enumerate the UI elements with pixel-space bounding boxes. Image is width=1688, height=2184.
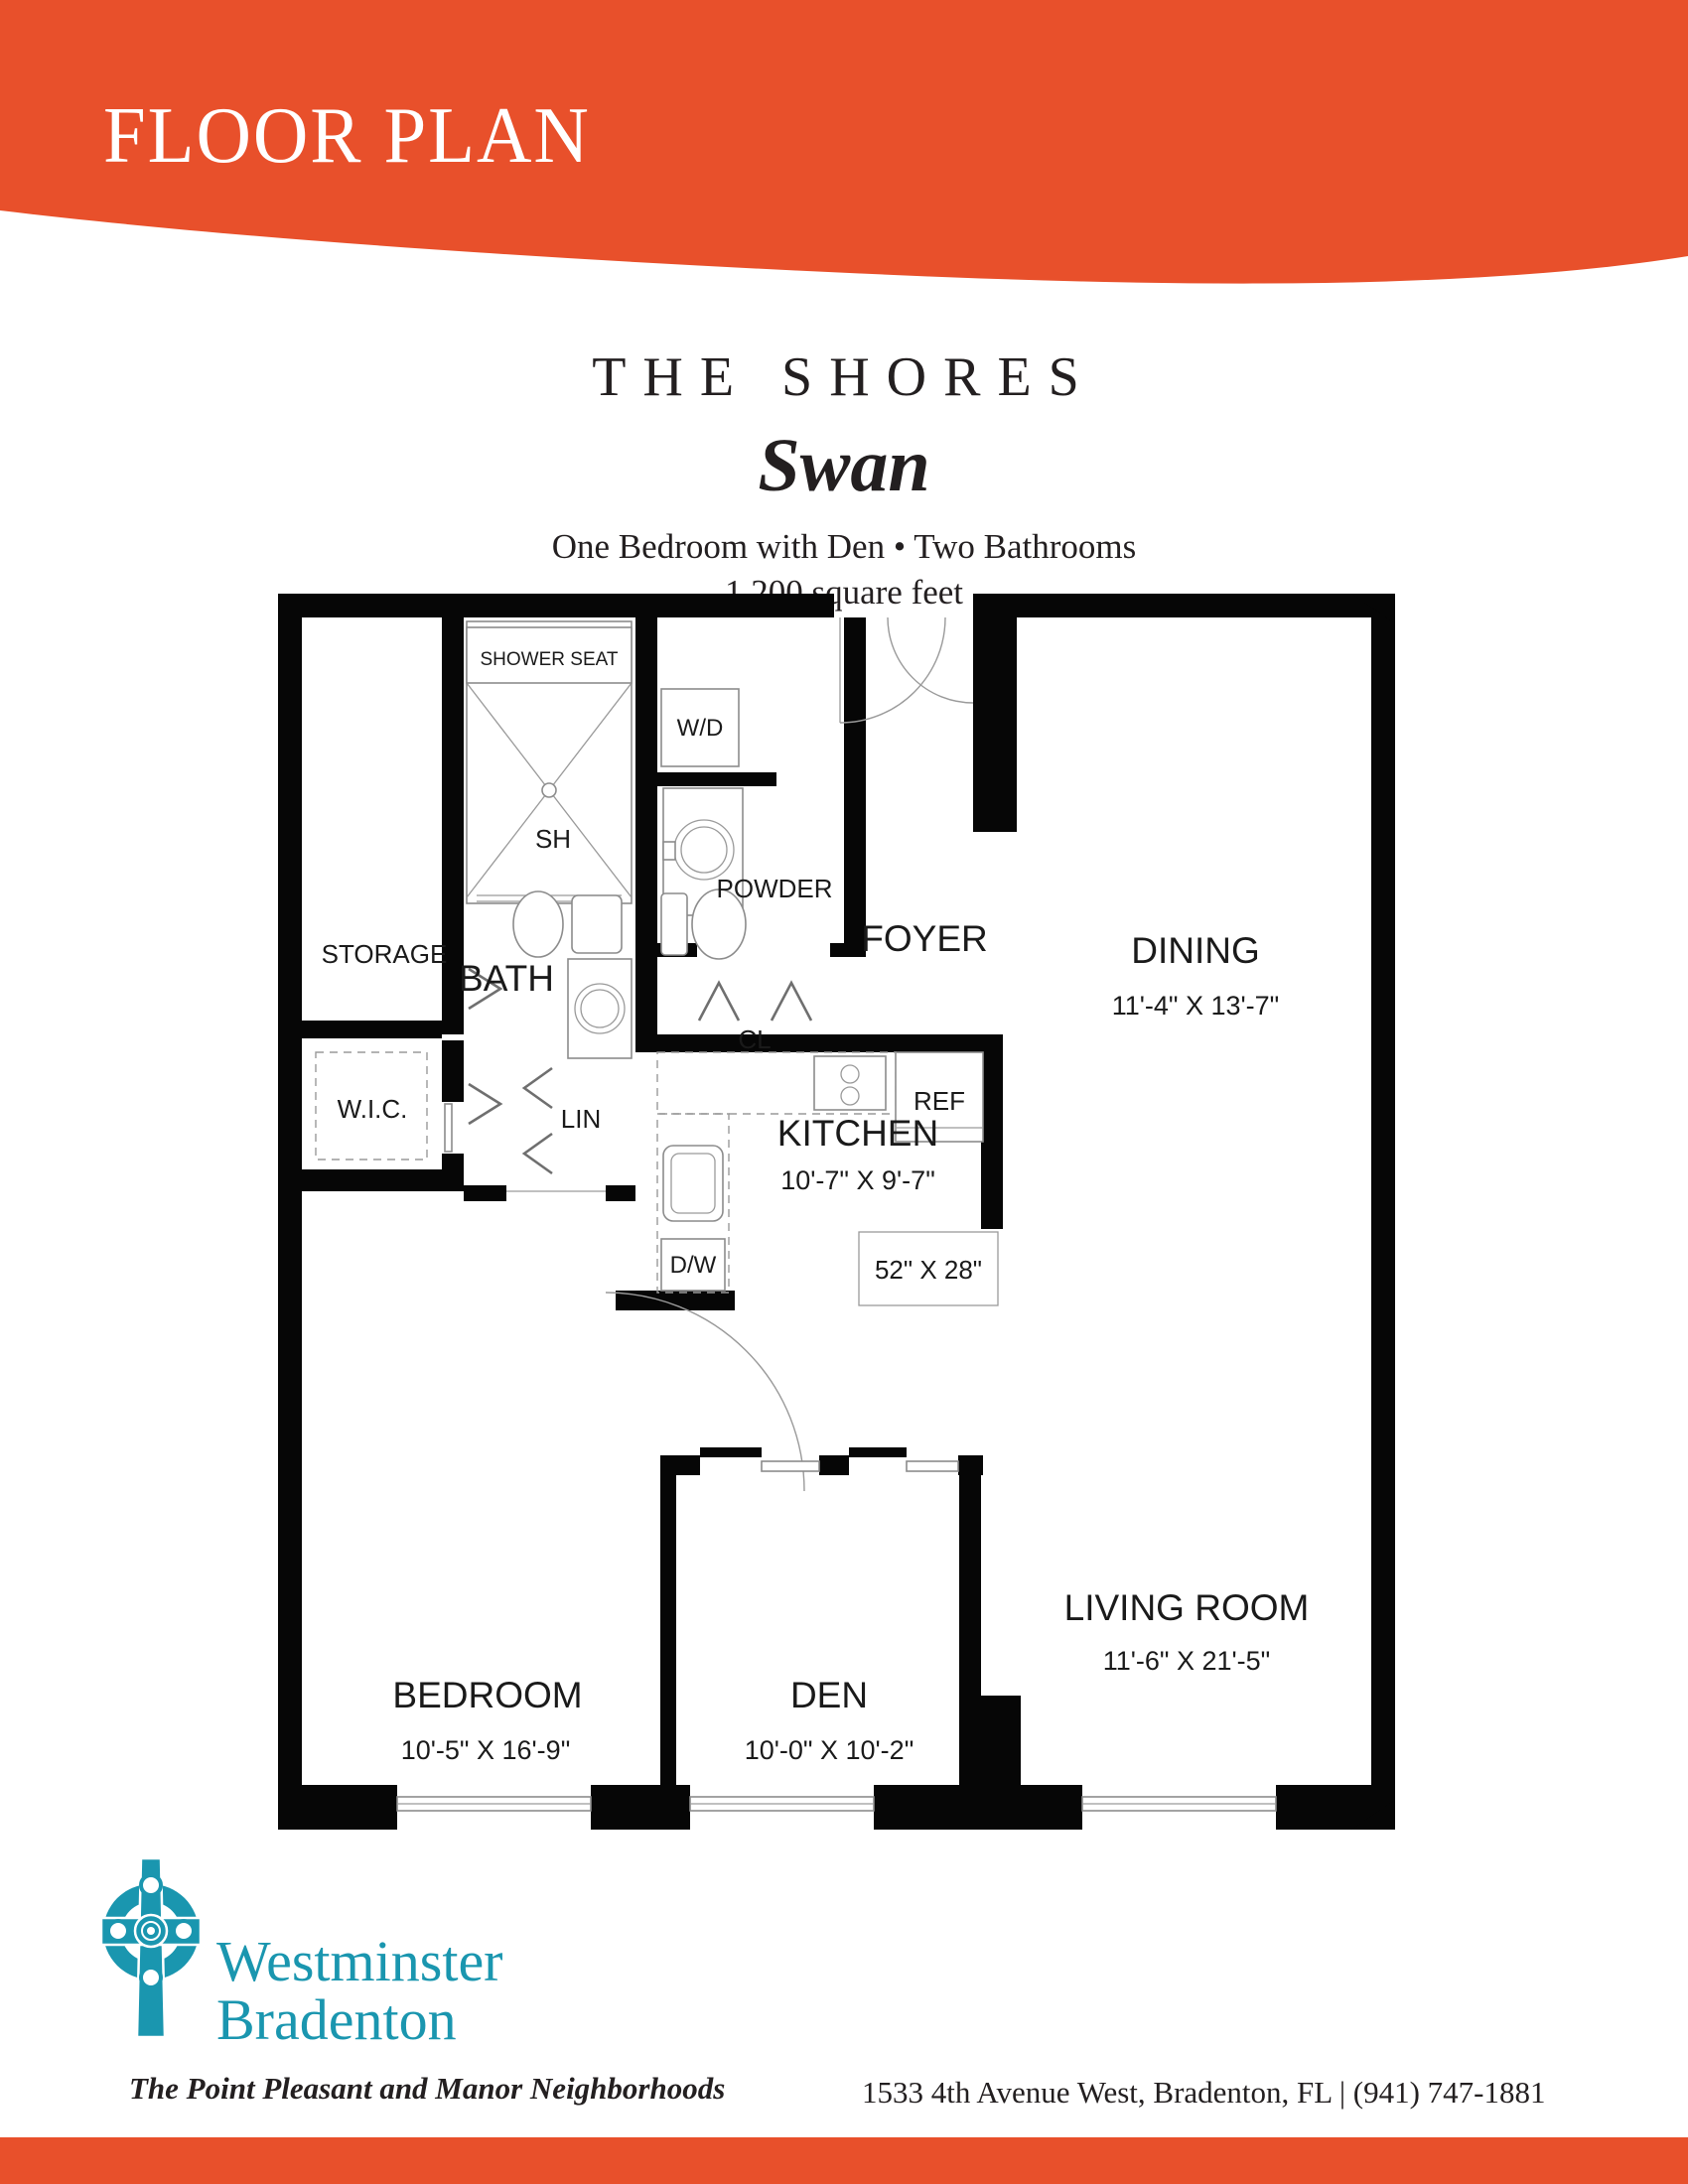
island-dims-label: 52" X 28" — [875, 1255, 982, 1285]
dishwasher-label: D/W — [670, 1252, 717, 1279]
room-label-bedroom: BEDROOM — [392, 1675, 582, 1715]
org-line-1: Westminster — [216, 1932, 503, 1990]
room-label-den: DEN — [790, 1675, 868, 1715]
closet-bifold-icon — [699, 983, 739, 1021]
page-title: FLOOR PLAN — [103, 91, 591, 182]
unit-model-name: Swan — [0, 423, 1688, 509]
linen-bifold-icon — [524, 1068, 552, 1108]
address-phone: 1533 4th Avenue West, Bradenton, FL | (9… — [862, 2075, 1546, 2111]
room-label-storage: STORAGE — [322, 939, 448, 969]
room-label-bath: BATH — [459, 958, 554, 999]
walls — [278, 594, 1395, 1830]
room-label-lin: LIN — [561, 1104, 601, 1134]
room-label-living: LIVING ROOM — [1064, 1587, 1310, 1628]
linen-bifold-icon — [524, 1134, 552, 1173]
community-name: THE SHORES — [0, 345, 1688, 409]
room-label-powder: POWDER — [717, 874, 833, 903]
room-label-wic: W.I.C. — [338, 1094, 408, 1124]
floor-plan-page: FLOOR PLAN THE SHORES Swan One Bedroom w… — [0, 0, 1688, 2184]
room-dims-bedroom: 10'-5" X 16'-9" — [401, 1735, 571, 1765]
org-line-2: Bradenton — [216, 1990, 503, 2049]
toilet — [572, 895, 622, 953]
unit-features: One Bedroom with Den • Two Bathrooms — [0, 527, 1688, 567]
room-label-foyer: FOYER — [861, 918, 987, 959]
footer-bar — [0, 2137, 1688, 2184]
toilet — [661, 893, 687, 955]
room-dims-living: 11'-6" X 21'-5" — [1103, 1646, 1271, 1676]
floor-plan-drawing: SHOWER SEAT SH W/D STORAGE POWDER BATH C… — [278, 594, 1395, 1830]
bath-sink — [568, 959, 632, 1058]
neighborhoods-tagline: The Point Pleasant and Manor Neighborhoo… — [129, 2071, 725, 2107]
room-dims-kitchen: 10'-7" X 9'-7" — [780, 1165, 935, 1195]
title-block: THE SHORES Swan One Bedroom with Den • T… — [0, 345, 1688, 613]
celtic-cross-icon — [95, 1854, 207, 2045]
room-label-cl: CL — [738, 1024, 771, 1054]
room-dims-den: 10'-0" X 10'-2" — [745, 1735, 914, 1765]
entry-door-arc-2 — [888, 617, 973, 703]
windows — [397, 1797, 1276, 1811]
washer-dryer-label: W/D — [677, 715, 724, 742]
closet-bifold-icon — [772, 983, 811, 1021]
shower-seat-label: SHOWER SEAT — [481, 649, 619, 670]
room-label-kitchen: KITCHEN — [777, 1113, 938, 1154]
refrigerator-label: REF — [914, 1086, 965, 1116]
room-label-dining: DINING — [1131, 930, 1260, 971]
shower-label: SH — [535, 824, 571, 854]
room-dims-dining: 11'-4" X 13'-7" — [1112, 991, 1280, 1021]
organization-name: Westminster Bradenton — [216, 1932, 503, 2049]
wic-door-icon — [469, 1084, 500, 1124]
